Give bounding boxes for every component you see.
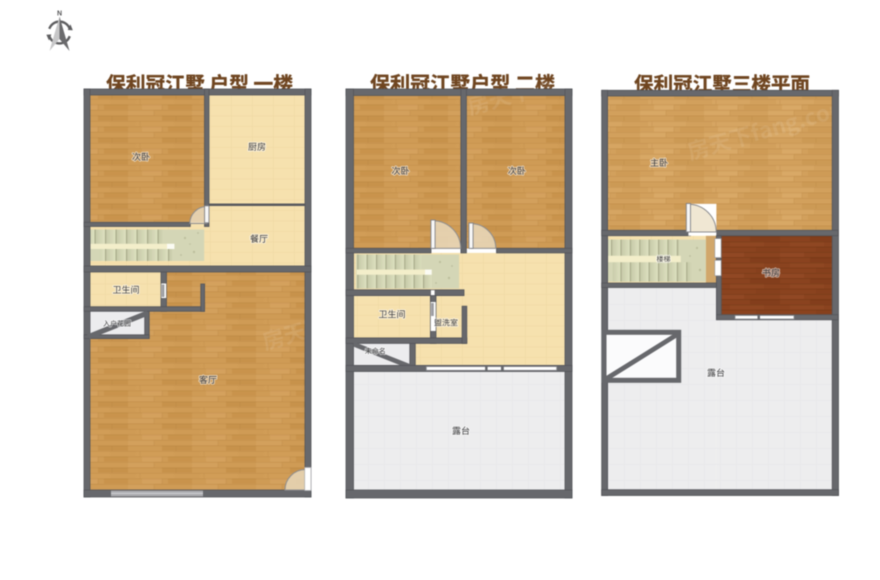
svg-text:N: N [57, 11, 62, 18]
